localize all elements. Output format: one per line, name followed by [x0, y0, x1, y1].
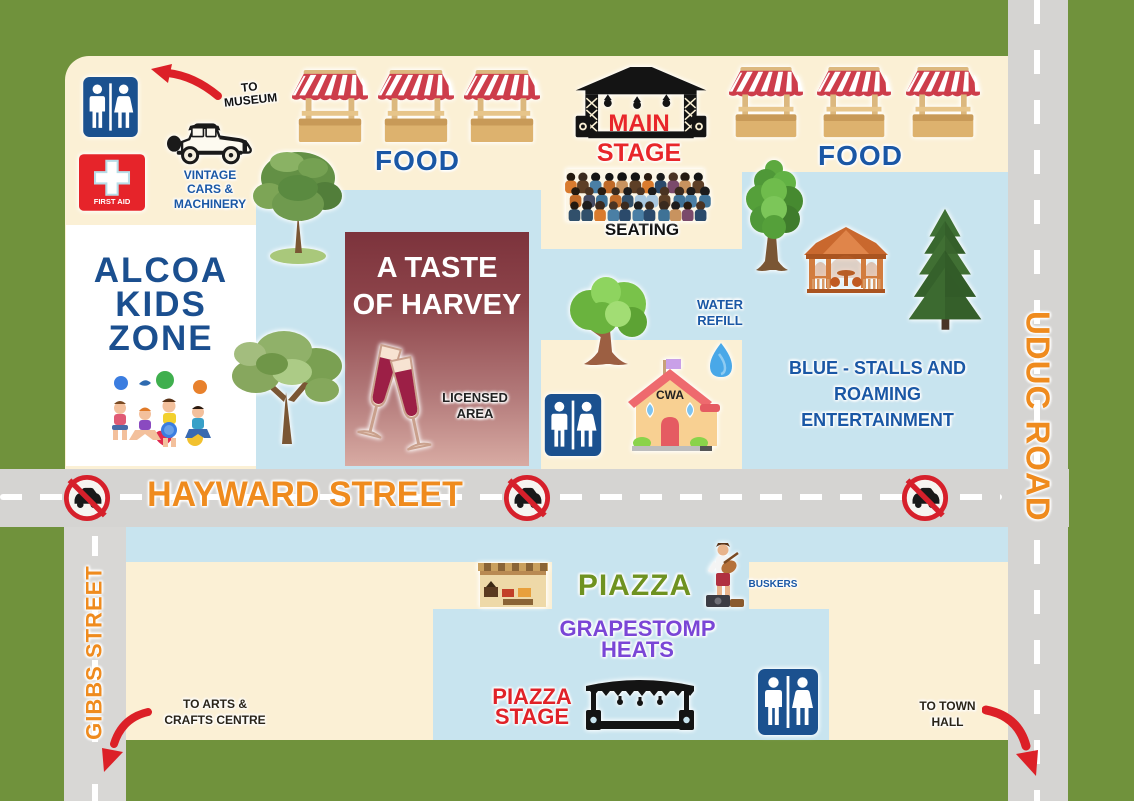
svg-text:FIRST AID: FIRST AID: [94, 197, 131, 206]
svg-text:CWA: CWA: [656, 388, 684, 402]
